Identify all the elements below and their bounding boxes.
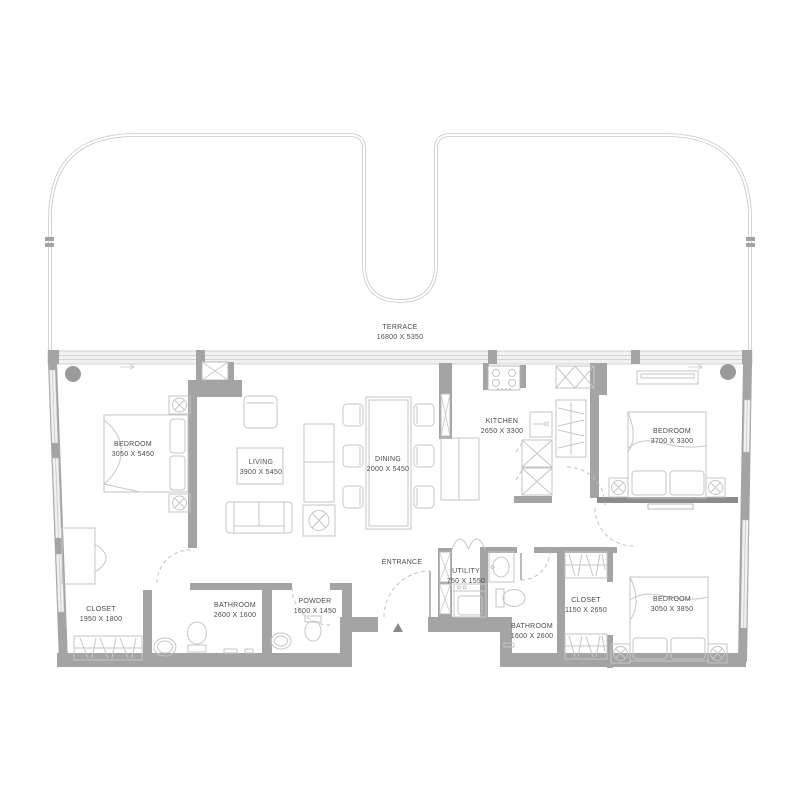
- entrance-marker-icon: [393, 623, 403, 632]
- bedroom-3-furniture: [611, 577, 727, 663]
- room-label-bathroom-2: BATHROOM1600 X 2600: [511, 622, 553, 642]
- room-label-bathroom-1: BATHROOM2600 X 1600: [214, 601, 256, 621]
- room-label-terrace: TERRACE16800 X 5350: [377, 323, 424, 343]
- room-label-dining: DINING2000 X 5450: [367, 455, 409, 475]
- exterior-walls: [48, 350, 752, 667]
- room-label-bedroom-2: BEDROOM3700 X 3300: [651, 427, 693, 447]
- room-label-utility: UTILITY750 X 1550: [447, 567, 485, 587]
- closet-1-furniture: [62, 528, 142, 660]
- floor-plan-drawing: [0, 0, 800, 800]
- terrace-outline: [45, 135, 755, 352]
- powder-fixtures: [271, 616, 321, 649]
- room-label-powder: POWDER1600 X 1450: [294, 597, 336, 617]
- room-label-closet-1: CLOSET1950 X 1800: [80, 605, 122, 625]
- structural-columns: [65, 364, 736, 382]
- floor-plan: TERRACE16800 X 5350 BEDROOM3050 X 5450 L…: [0, 0, 800, 800]
- room-label-bedroom-1: BEDROOM3050 X 5450: [112, 440, 154, 460]
- room-label-bedroom-3: BEDROOM3050 X 3850: [651, 595, 693, 615]
- room-label-entrance: ENTRANCE: [382, 558, 423, 568]
- room-label-closet-2: CLOSET1150 X 2650: [565, 596, 607, 616]
- bathroom-1-fixtures: [154, 622, 253, 656]
- room-label-kitchen: KITCHEN2650 X 3300: [481, 417, 523, 437]
- room-label-living: LIVING3900 X 5450: [240, 458, 282, 478]
